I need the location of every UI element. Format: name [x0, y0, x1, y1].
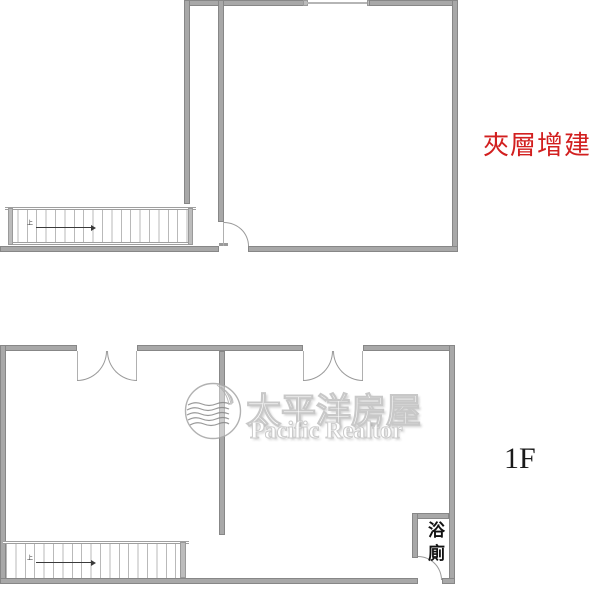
stair-direction-label: 上: [27, 556, 33, 562]
1f-partition-wall: [219, 351, 225, 535]
watermark-brand-cjk: 太平洋房屋: [246, 383, 421, 434]
1f-right-wall: [449, 345, 455, 584]
door-swing-arc: [107, 351, 137, 381]
bathroom-label: 浴廁: [422, 521, 447, 567]
floor-label-1f: 1F: [504, 442, 536, 476]
mezzanine-label: 夾層增建: [483, 125, 591, 162]
stair-end-cap: [188, 208, 193, 245]
arrow-head-icon: [91, 225, 96, 231]
stair-direction-arrow: [36, 227, 91, 228]
pacific-realtor-watermark: 太平洋房屋 Pacific Realtor: [0, 0, 600, 591]
door-swing-arc: [303, 351, 333, 381]
bathroom-left-wall: [412, 513, 418, 558]
stair-end-cap: [180, 542, 186, 578]
mezzanine-top-wall-right: [369, 0, 458, 6]
mezzanine-bottom-wall-left: [0, 246, 219, 252]
mezzanine-shaft-wall-right: [218, 0, 224, 222]
mezzanine-shaft-wall-left: [184, 0, 190, 204]
arrow-head-icon: [91, 560, 96, 566]
mezzanine-right-wall: [452, 0, 458, 252]
mezzanine-top-wall-left: [184, 0, 307, 6]
door-swing-arc: [77, 351, 107, 381]
door-swing-arc: [224, 222, 249, 246]
1f-bottom-wall-left: [0, 578, 418, 584]
stair-rail: [8, 242, 193, 245]
pacific-realtor-globe-icon: [183, 381, 243, 441]
stair-direction-label: 上: [27, 221, 33, 227]
1f-top-wall-c: [363, 345, 455, 351]
mezzanine-bottom-wall-right: [248, 246, 458, 252]
1f-top-wall-a: [0, 345, 77, 351]
watermark-brand-en: Pacific Realtor: [250, 418, 403, 445]
door-swing-arc: [333, 351, 363, 381]
floorplan-canvas: 上 夾層增建 浴廁: [0, 0, 600, 591]
stair-end-cap: [8, 208, 13, 245]
stair-direction-arrow: [36, 562, 91, 563]
1f-bottom-wall-right: [442, 578, 455, 584]
window: [307, 2, 369, 4]
